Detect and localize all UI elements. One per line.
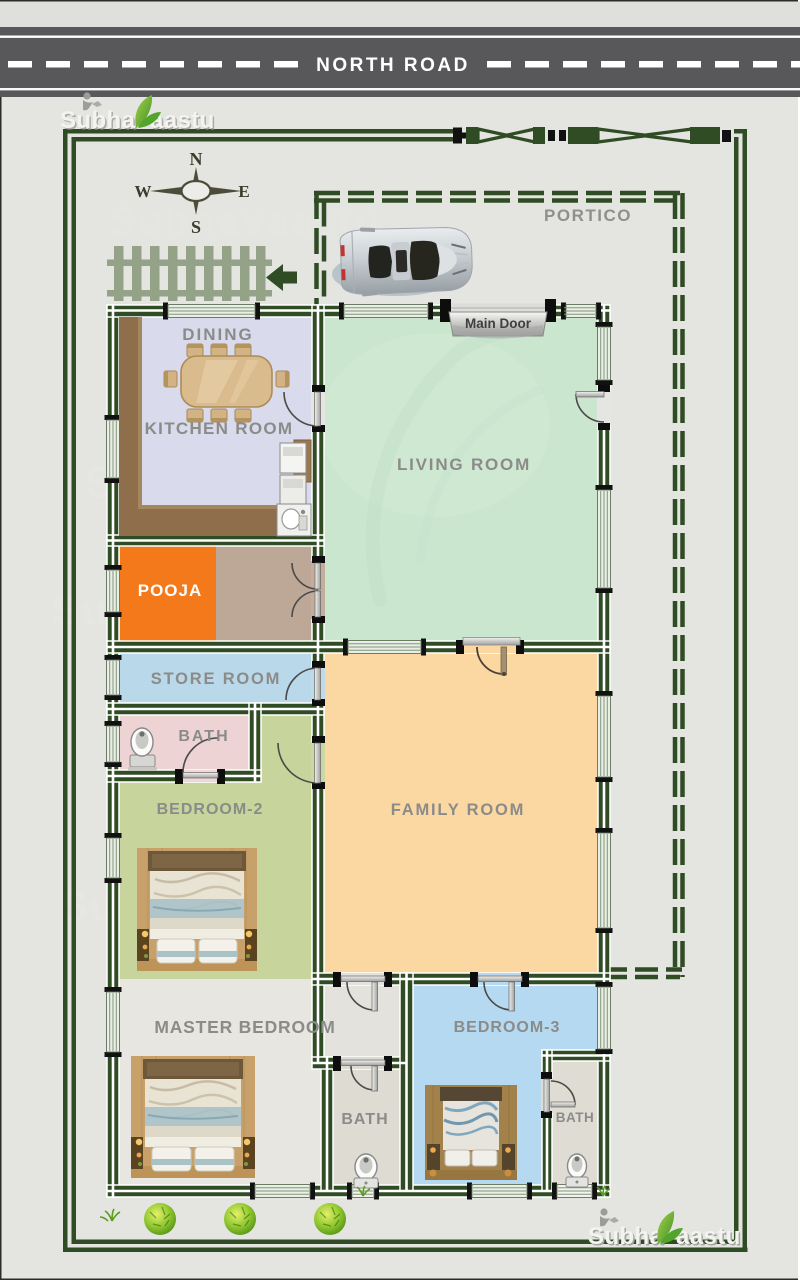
svg-text:KITCHEN ROOM: KITCHEN ROOM <box>145 419 294 438</box>
svg-text:aastu: aastu <box>676 1223 741 1250</box>
svg-text:LIVING ROOM: LIVING ROOM <box>397 455 531 474</box>
svg-text:NORTH ROAD: NORTH ROAD <box>316 55 470 76</box>
svg-text:N: N <box>190 149 203 169</box>
svg-text:MASTER BEDROOM: MASTER BEDROOM <box>154 1017 335 1037</box>
svg-text:PORTICO: PORTICO <box>544 206 632 225</box>
svg-text:STORE ROOM: STORE ROOM <box>151 670 281 688</box>
svg-text:BATH: BATH <box>556 1110 595 1125</box>
svg-text:BATH: BATH <box>178 728 229 745</box>
svg-text:Main Door: Main Door <box>465 316 532 331</box>
svg-text:W: W <box>135 182 152 201</box>
svg-text:BEDROOM-2: BEDROOM-2 <box>157 801 264 818</box>
svg-text:aastu: aastu <box>150 107 215 134</box>
svg-text:POOJA: POOJA <box>138 581 203 600</box>
svg-text:S: S <box>191 217 201 237</box>
svg-text:E: E <box>238 182 249 201</box>
svg-text:Subha: Subha <box>588 1223 664 1250</box>
svg-text:DINING: DINING <box>182 325 254 344</box>
svg-text:FAMILY ROOM: FAMILY ROOM <box>391 801 525 819</box>
svg-text:BEDROOM-3: BEDROOM-3 <box>454 1019 561 1036</box>
svg-text:BATH: BATH <box>341 1111 388 1128</box>
svg-text:Subhavaastu: Subhavaastu <box>108 197 380 244</box>
svg-text:Subha: Subha <box>60 107 136 134</box>
